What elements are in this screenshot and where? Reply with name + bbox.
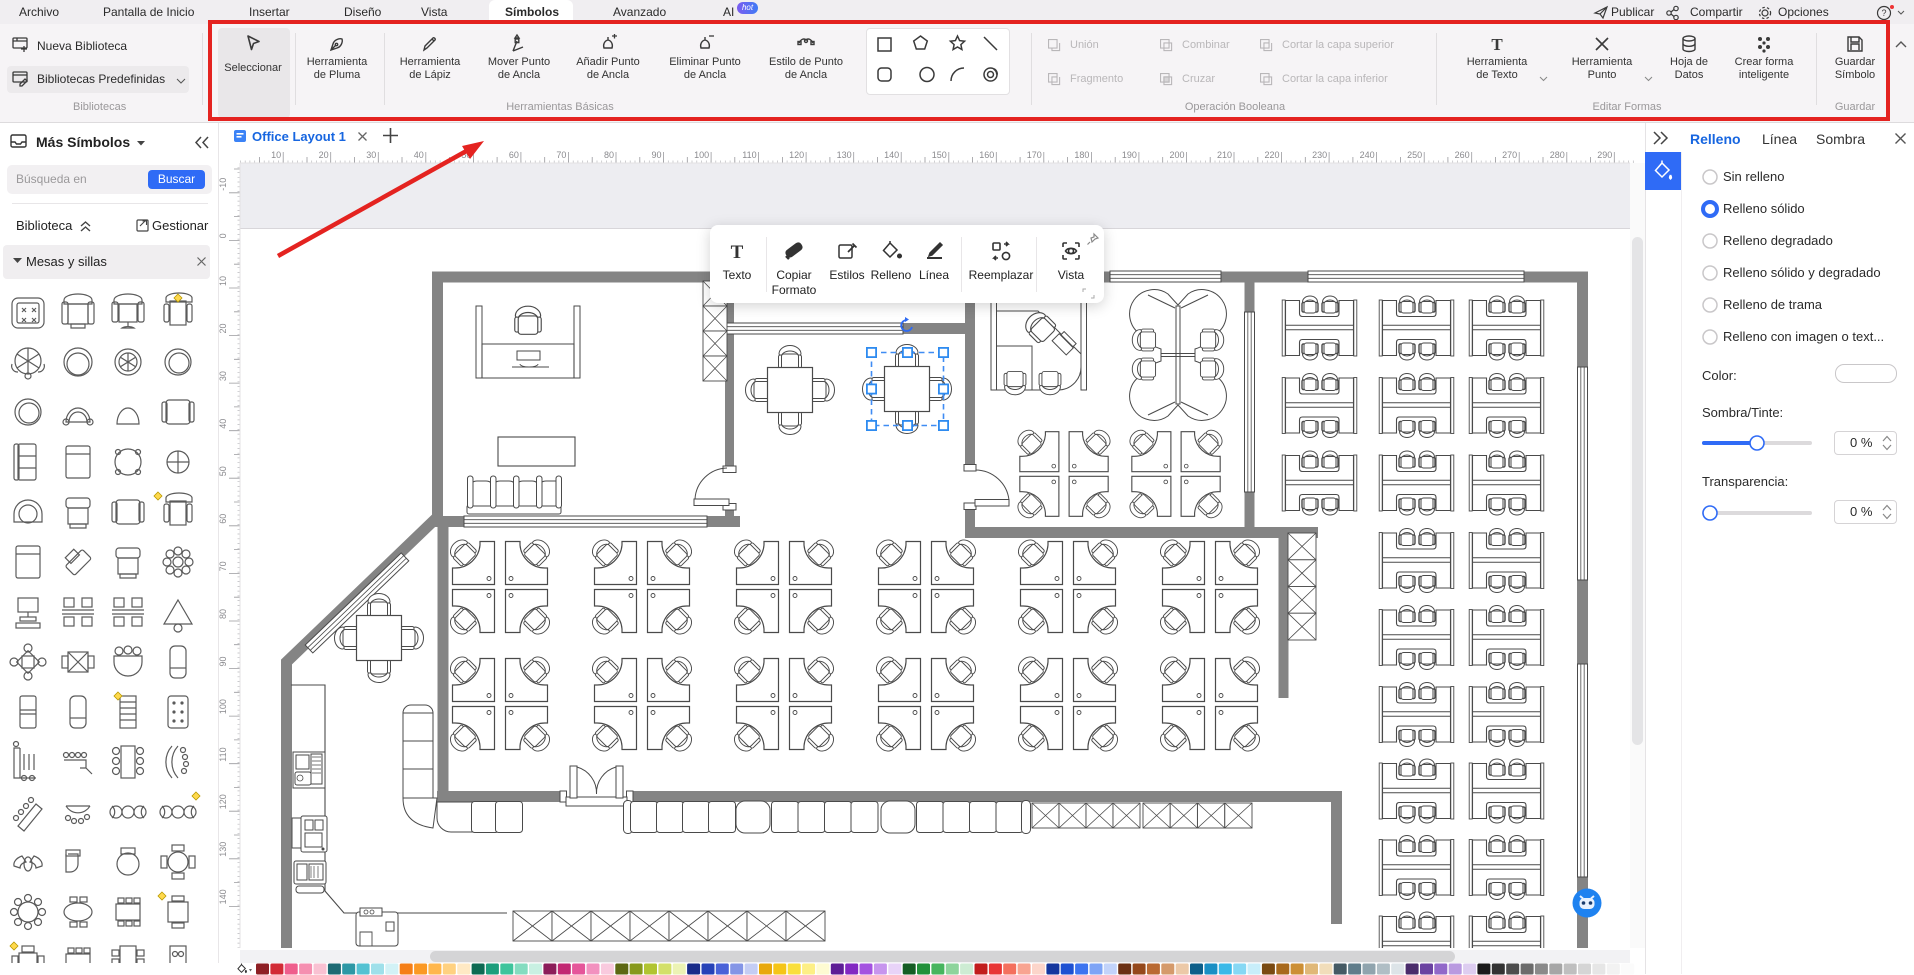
svg-text:70: 70	[556, 150, 566, 160]
svg-text:50: 50	[219, 466, 228, 476]
svg-text:70: 70	[219, 561, 228, 571]
svg-text:150: 150	[932, 150, 947, 160]
svg-text:200: 200	[1169, 150, 1184, 160]
svg-text:170: 170	[1027, 150, 1042, 160]
svg-text:160: 160	[979, 150, 994, 160]
svg-text:240: 240	[1360, 150, 1375, 160]
svg-text:210: 210	[1217, 150, 1232, 160]
svg-text:130: 130	[837, 150, 852, 160]
svg-text:220: 220	[1264, 150, 1279, 160]
svg-text:80: 80	[219, 609, 228, 619]
svg-text:60: 60	[219, 514, 228, 524]
svg-text:?: ?	[1881, 8, 1886, 18]
svg-text:250: 250	[1407, 150, 1422, 160]
svg-text:180: 180	[1074, 150, 1089, 160]
svg-text:T: T	[731, 242, 744, 263]
svg-text:110: 110	[742, 150, 756, 160]
svg-text:110: 110	[219, 747, 228, 761]
svg-text:290: 290	[1597, 150, 1612, 160]
svg-text:80: 80	[604, 150, 614, 160]
svg-text:10: 10	[219, 276, 228, 286]
svg-text:100: 100	[219, 699, 228, 714]
svg-text:130: 130	[219, 842, 228, 857]
svg-text:120: 120	[219, 794, 228, 809]
svg-text:100: 100	[694, 150, 709, 160]
svg-text:0: 0	[219, 233, 228, 238]
svg-text:90: 90	[219, 656, 228, 666]
svg-text:60: 60	[509, 150, 519, 160]
svg-text:260: 260	[1455, 150, 1470, 160]
svg-text:140: 140	[219, 889, 228, 904]
svg-text:280: 280	[1550, 150, 1565, 160]
svg-text:40: 40	[219, 419, 228, 429]
svg-text:140: 140	[884, 150, 899, 160]
svg-text:-10: -10	[219, 178, 228, 191]
svg-text:230: 230	[1312, 150, 1327, 160]
svg-text:30: 30	[219, 371, 228, 381]
svg-text:20: 20	[219, 323, 228, 333]
svg-text:270: 270	[1502, 150, 1517, 160]
svg-text:190: 190	[1122, 150, 1137, 160]
svg-text:120: 120	[789, 150, 804, 160]
svg-text:90: 90	[651, 150, 661, 160]
